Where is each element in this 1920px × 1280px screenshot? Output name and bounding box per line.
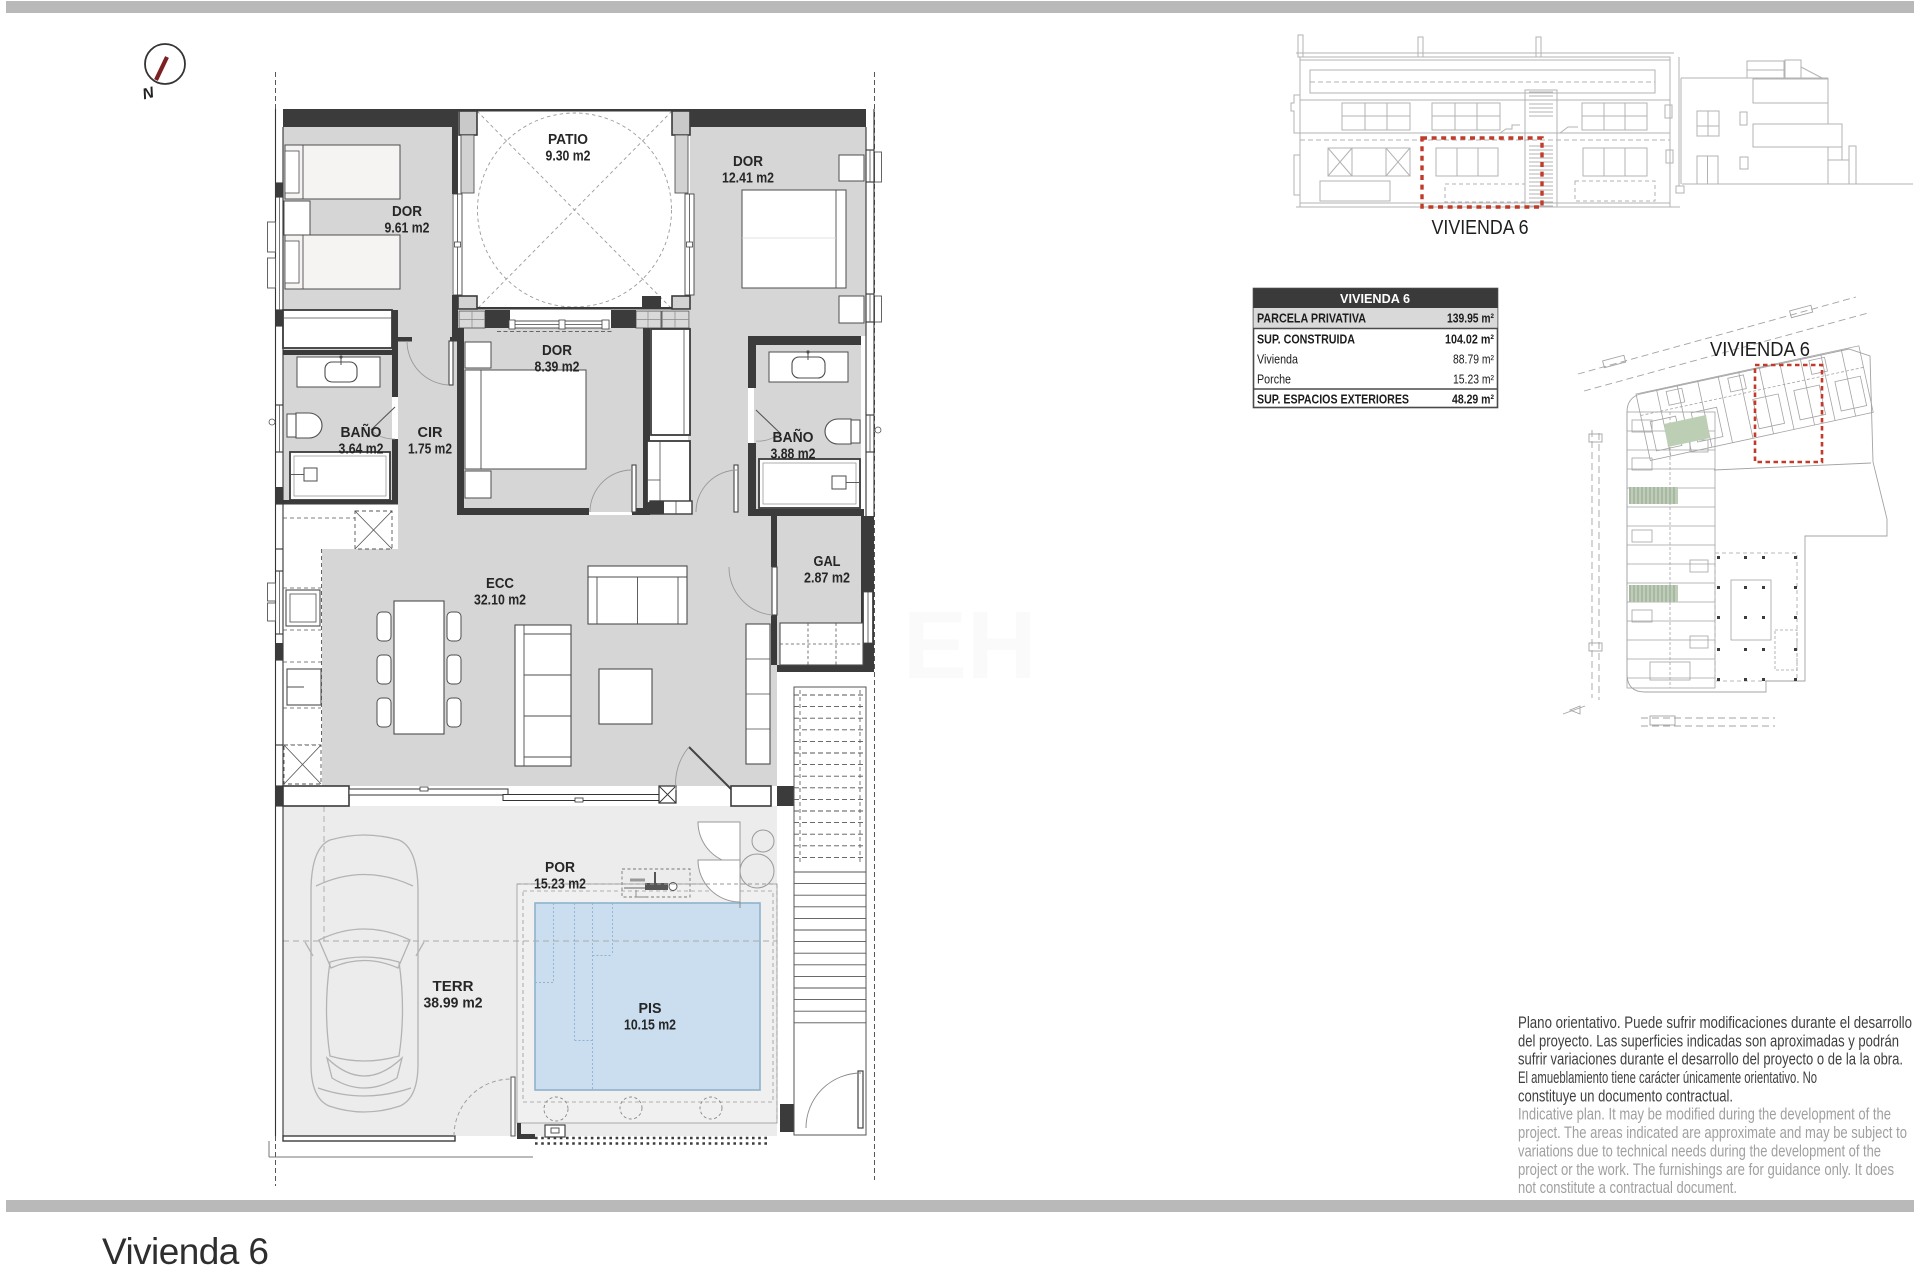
svg-text:PIS: PIS <box>639 1001 662 1017</box>
svg-text:32.10 m2: 32.10 m2 <box>474 593 526 609</box>
svg-text:sufrir variaciones durante el: sufrir variaciones durante el desarrollo… <box>1518 1051 1903 1069</box>
svg-text:15.23 m²: 15.23 m² <box>1453 372 1495 387</box>
svg-text:48.29 m²: 48.29 m² <box>1452 392 1494 407</box>
svg-text:15.23 m2: 15.23 m2 <box>534 877 586 893</box>
svg-text:del proyecto. Las superficies: del proyecto. Las superficies indicadas … <box>1518 1032 1899 1050</box>
svg-text:DOR: DOR <box>392 204 422 220</box>
svg-text:3.64 m2: 3.64 m2 <box>339 442 384 458</box>
svg-text:DOR: DOR <box>733 154 763 170</box>
svg-text:CIR: CIR <box>418 425 444 441</box>
svg-text:constituye un documento contra: constituye un documento contractual. <box>1518 1087 1733 1105</box>
svg-text:BAÑO: BAÑO <box>341 423 382 441</box>
svg-text:project or the work. The furni: project or the work. The furnishings are… <box>1518 1161 1894 1179</box>
svg-text:TERR: TERR <box>433 979 475 995</box>
svg-text:Indicative plan. It may be mod: Indicative plan. It may be modified duri… <box>1518 1106 1891 1124</box>
svg-text:Vivienda 6: Vivienda 6 <box>102 1231 269 1272</box>
svg-text:1.75 m2: 1.75 m2 <box>408 442 452 458</box>
svg-text:9.30 m2: 9.30 m2 <box>546 149 591 165</box>
svg-text:PARCELA PRIVATIVA: PARCELA PRIVATIVA <box>1257 311 1366 326</box>
svg-text:BAÑO: BAÑO <box>773 428 814 446</box>
svg-text:POR: POR <box>545 860 576 876</box>
svg-text:9.61 m2: 9.61 m2 <box>385 221 430 237</box>
svg-text:GAL: GAL <box>814 554 841 570</box>
svg-text:not constitute a contractual d: not constitute a contractual document. <box>1518 1179 1737 1197</box>
svg-text:EH: EH <box>903 592 1036 699</box>
svg-text:ECC: ECC <box>486 576 514 592</box>
svg-text:3.88 m2: 3.88 m2 <box>771 447 816 463</box>
svg-text:Vivienda: Vivienda <box>1257 352 1299 367</box>
svg-text:2.87 m2: 2.87 m2 <box>804 571 850 587</box>
svg-text:VIVIENDA 6: VIVIENDA 6 <box>1710 339 1810 361</box>
svg-text:PATIO: PATIO <box>548 132 588 148</box>
svg-text:Porche: Porche <box>1257 372 1291 387</box>
svg-text:10.15 m2: 10.15 m2 <box>624 1018 676 1034</box>
svg-text:project. The areas indicated a: project. The areas indicated are approxi… <box>1518 1124 1907 1142</box>
svg-text:variations due to technical ne: variations due to technical needs during… <box>1518 1142 1881 1160</box>
svg-text:Plano orientativo. Puede sufri: Plano orientativo. Puede sufrir modifica… <box>1518 1014 1912 1032</box>
svg-text:VIVIENDA 6: VIVIENDA 6 <box>1432 217 1529 239</box>
svg-text:104.02 m²: 104.02 m² <box>1445 332 1494 347</box>
svg-text:88.79 m²: 88.79 m² <box>1453 352 1495 367</box>
svg-text:12.41 m2: 12.41 m2 <box>722 171 774 187</box>
svg-text:8.39 m2: 8.39 m2 <box>535 360 580 376</box>
svg-text:DOR: DOR <box>542 343 572 359</box>
svg-text:SUP. CONSTRUIDA: SUP. CONSTRUIDA <box>1257 332 1355 347</box>
svg-text:VIVIENDA 6: VIVIENDA 6 <box>1340 291 1410 306</box>
svg-text:139.95 m²: 139.95 m² <box>1447 311 1494 326</box>
svg-text:El amueblamiento tiene carácte: El amueblamiento tiene carácter únicamen… <box>1518 1069 1817 1087</box>
svg-text:38.99 m2: 38.99 m2 <box>424 996 483 1012</box>
svg-text:SUP. ESPACIOS EXTERIORES: SUP. ESPACIOS EXTERIORES <box>1257 392 1409 407</box>
